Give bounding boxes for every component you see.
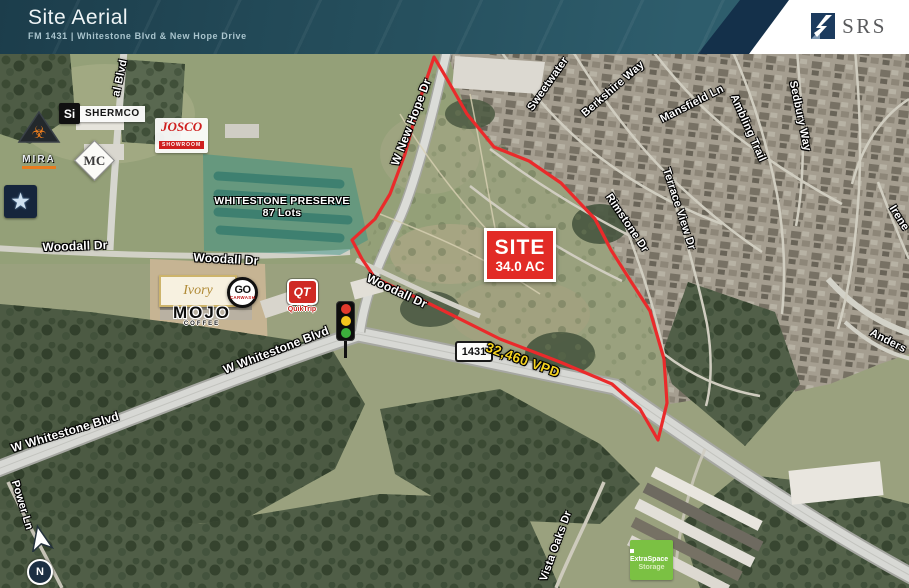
quiktrip-name: QuikTrip [285, 306, 319, 313]
star-icon: ★ [10, 190, 31, 213]
aerial-map: al Blvd W New Hope Dr Sweetwater Berkshi… [0, 54, 909, 588]
traffic-light-pole [344, 341, 347, 358]
go-carwash-sub: CARWASH [230, 295, 255, 300]
site-callout-label: SITE [495, 237, 546, 259]
mira-logo: ☣ MIRA [16, 110, 62, 169]
srs-logo-icon [811, 13, 835, 39]
whitestone-preserve-label: WHITESTONE PRESERVE 87 Lots [214, 195, 349, 219]
mojo-logo: MOJO COFFEE [157, 305, 247, 327]
extraspace-storage-logo: ExtraSpace Storage [630, 540, 673, 580]
josco-showroom: SHOWROOM [159, 141, 204, 149]
header-bar: Site Aerial FM 1431 | Whitestone Blvd & … [0, 0, 909, 55]
traffic-light-red [341, 304, 351, 314]
mira-name: MIRA [22, 154, 56, 169]
shermco-name: SHERMCO [80, 106, 145, 122]
mojo-name: MOJO [157, 305, 247, 321]
star-logo: ★ [4, 185, 37, 218]
josco-logo: JOSCO SHOWROOM [155, 118, 208, 153]
traffic-light-green [341, 328, 351, 338]
mojo-coffee: COFFEE [157, 321, 247, 327]
mira-biohazard-icon: ☣ [17, 110, 61, 144]
ivory-name: Ivory [183, 283, 213, 299]
north-arrow: N [17, 524, 63, 585]
site-aerial-page: Site Aerial FM 1431 | Whitestone Blvd & … [0, 0, 909, 588]
srs-logo-text: SRS [842, 14, 887, 39]
site-callout: SITE 34.0 AC [484, 228, 556, 282]
quiktrip-logo: QT QuikTrip [285, 279, 319, 313]
north-arrow-icon [22, 524, 58, 552]
header-accent-band [698, 0, 798, 54]
page-title: Site Aerial [28, 6, 128, 30]
srs-logo: SRS [811, 13, 887, 39]
compass-n-badge: N [27, 559, 53, 585]
traffic-light-yellow [341, 316, 351, 326]
extraspace-sub: Storage [638, 564, 664, 572]
aerial-imagery [0, 54, 909, 588]
site-callout-acreage: 34.0 AC [495, 259, 544, 274]
preserve-name: WHITESTONE PRESERVE [214, 195, 349, 207]
svg-text:☣: ☣ [31, 123, 46, 143]
qt-icon: QT [287, 279, 318, 305]
shermco-logo: Si SHERMCO [59, 103, 145, 124]
shermco-icon: Si [59, 103, 80, 124]
street-label-woodall-dr-west: Woodall Dr [42, 238, 108, 254]
go-name: GO [234, 285, 250, 295]
preserve-lots: 87 Lots [214, 207, 349, 219]
extraspace-name: ExtraSpace [630, 548, 673, 564]
page-subtitle: FM 1431 | Whitestone Blvd & New Hope Dri… [28, 31, 247, 41]
mc-initials: MC [84, 152, 106, 168]
header-white-wedge [749, 0, 909, 54]
traffic-light-icon [336, 301, 354, 358]
go-carwash-logo: GO CARWASH [227, 277, 258, 308]
josco-name: JOSCO [159, 120, 204, 133]
